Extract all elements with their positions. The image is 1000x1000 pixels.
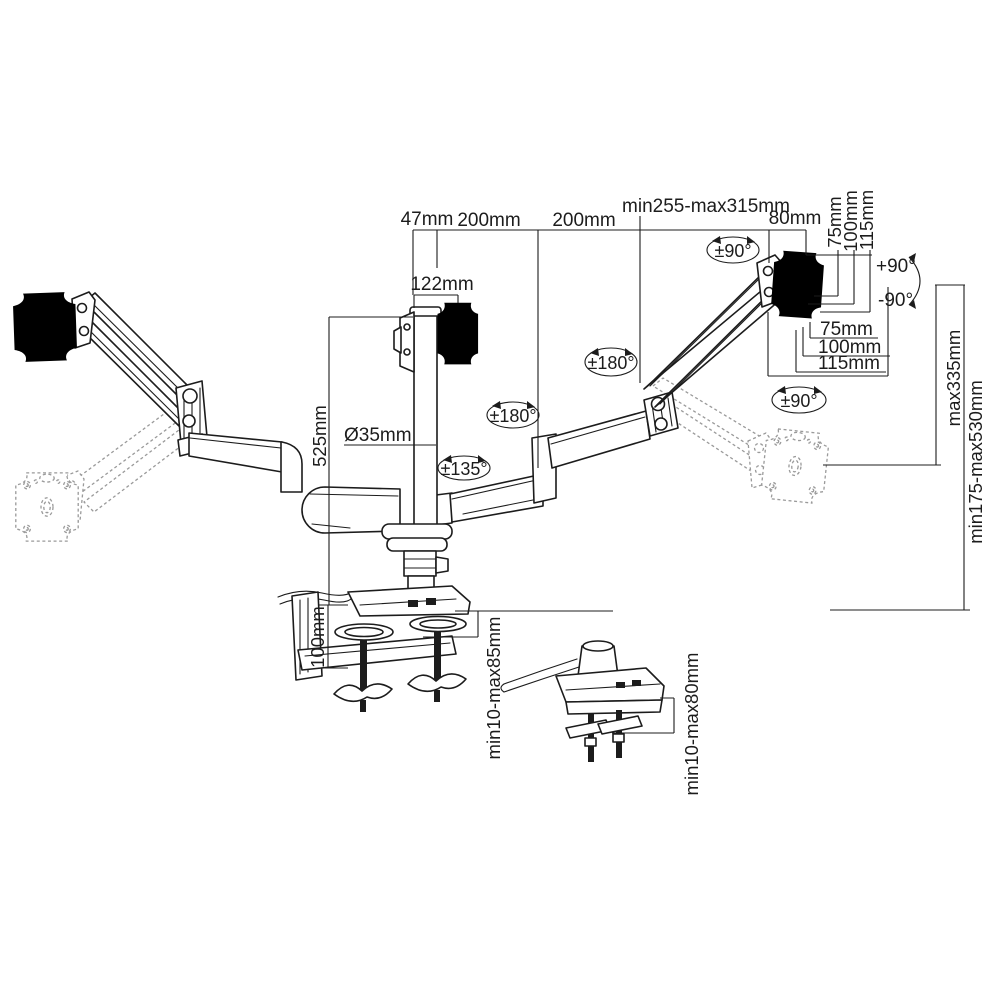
dim-desk-thickness-grommet: min10-max80mm <box>681 653 702 796</box>
dim-clamp-100mm: 100mm <box>307 606 328 668</box>
vesa-plate-left <box>13 292 78 362</box>
diagram-page: 47mm 200mm 200mm min255-max315mm 80mm 12… <box>0 0 1000 1000</box>
dim-80mm: 80mm <box>769 208 822 229</box>
rotate-arm-center: ±135° <box>440 459 487 479</box>
right-lower-arm <box>420 434 556 527</box>
dim-525mm: 525mm <box>309 405 330 467</box>
dim-min255-max315: min255-max315mm <box>622 196 790 217</box>
rotate-arm-mid: ±180° <box>489 406 536 426</box>
dim-200mm-a: 200mm <box>457 210 520 231</box>
dim-47mm: 47mm <box>401 209 454 230</box>
tilt-up-label: +90° <box>876 256 916 277</box>
left-lower-arm <box>189 433 400 533</box>
dim-vesa-v115: 115mm <box>856 190 877 250</box>
vesa-plate-right-ghost <box>760 428 829 504</box>
monitor-arm-diagram: 47mm 200mm 200mm min255-max315mm 80mm 12… <box>0 0 1000 1000</box>
rotate-vesa-right: ±90° <box>780 391 817 411</box>
dim-max335mm: max335mm <box>943 330 964 427</box>
rotate-swivel-top: ±90° <box>714 241 751 261</box>
ghost-left-arm <box>60 408 189 526</box>
dim-122mm: 122mm <box>410 274 473 295</box>
dim-200mm-b: 200mm <box>552 210 615 231</box>
tilt-down-label: -90° <box>878 290 913 311</box>
vesa-plate-center <box>438 303 479 365</box>
rotate-arm-right: ±180° <box>587 353 634 373</box>
dim-vesa-h115: 115mm <box>818 353 880 374</box>
dim-min175-max530: min175-max530mm <box>965 380 986 543</box>
dim-pole-diameter: Ø35mm <box>344 425 412 446</box>
vesa-plate-left-ghost <box>16 473 78 541</box>
grommet-detail-view <box>501 641 664 762</box>
dim-desk-thickness-clamp: min10-max85mm <box>483 617 504 760</box>
